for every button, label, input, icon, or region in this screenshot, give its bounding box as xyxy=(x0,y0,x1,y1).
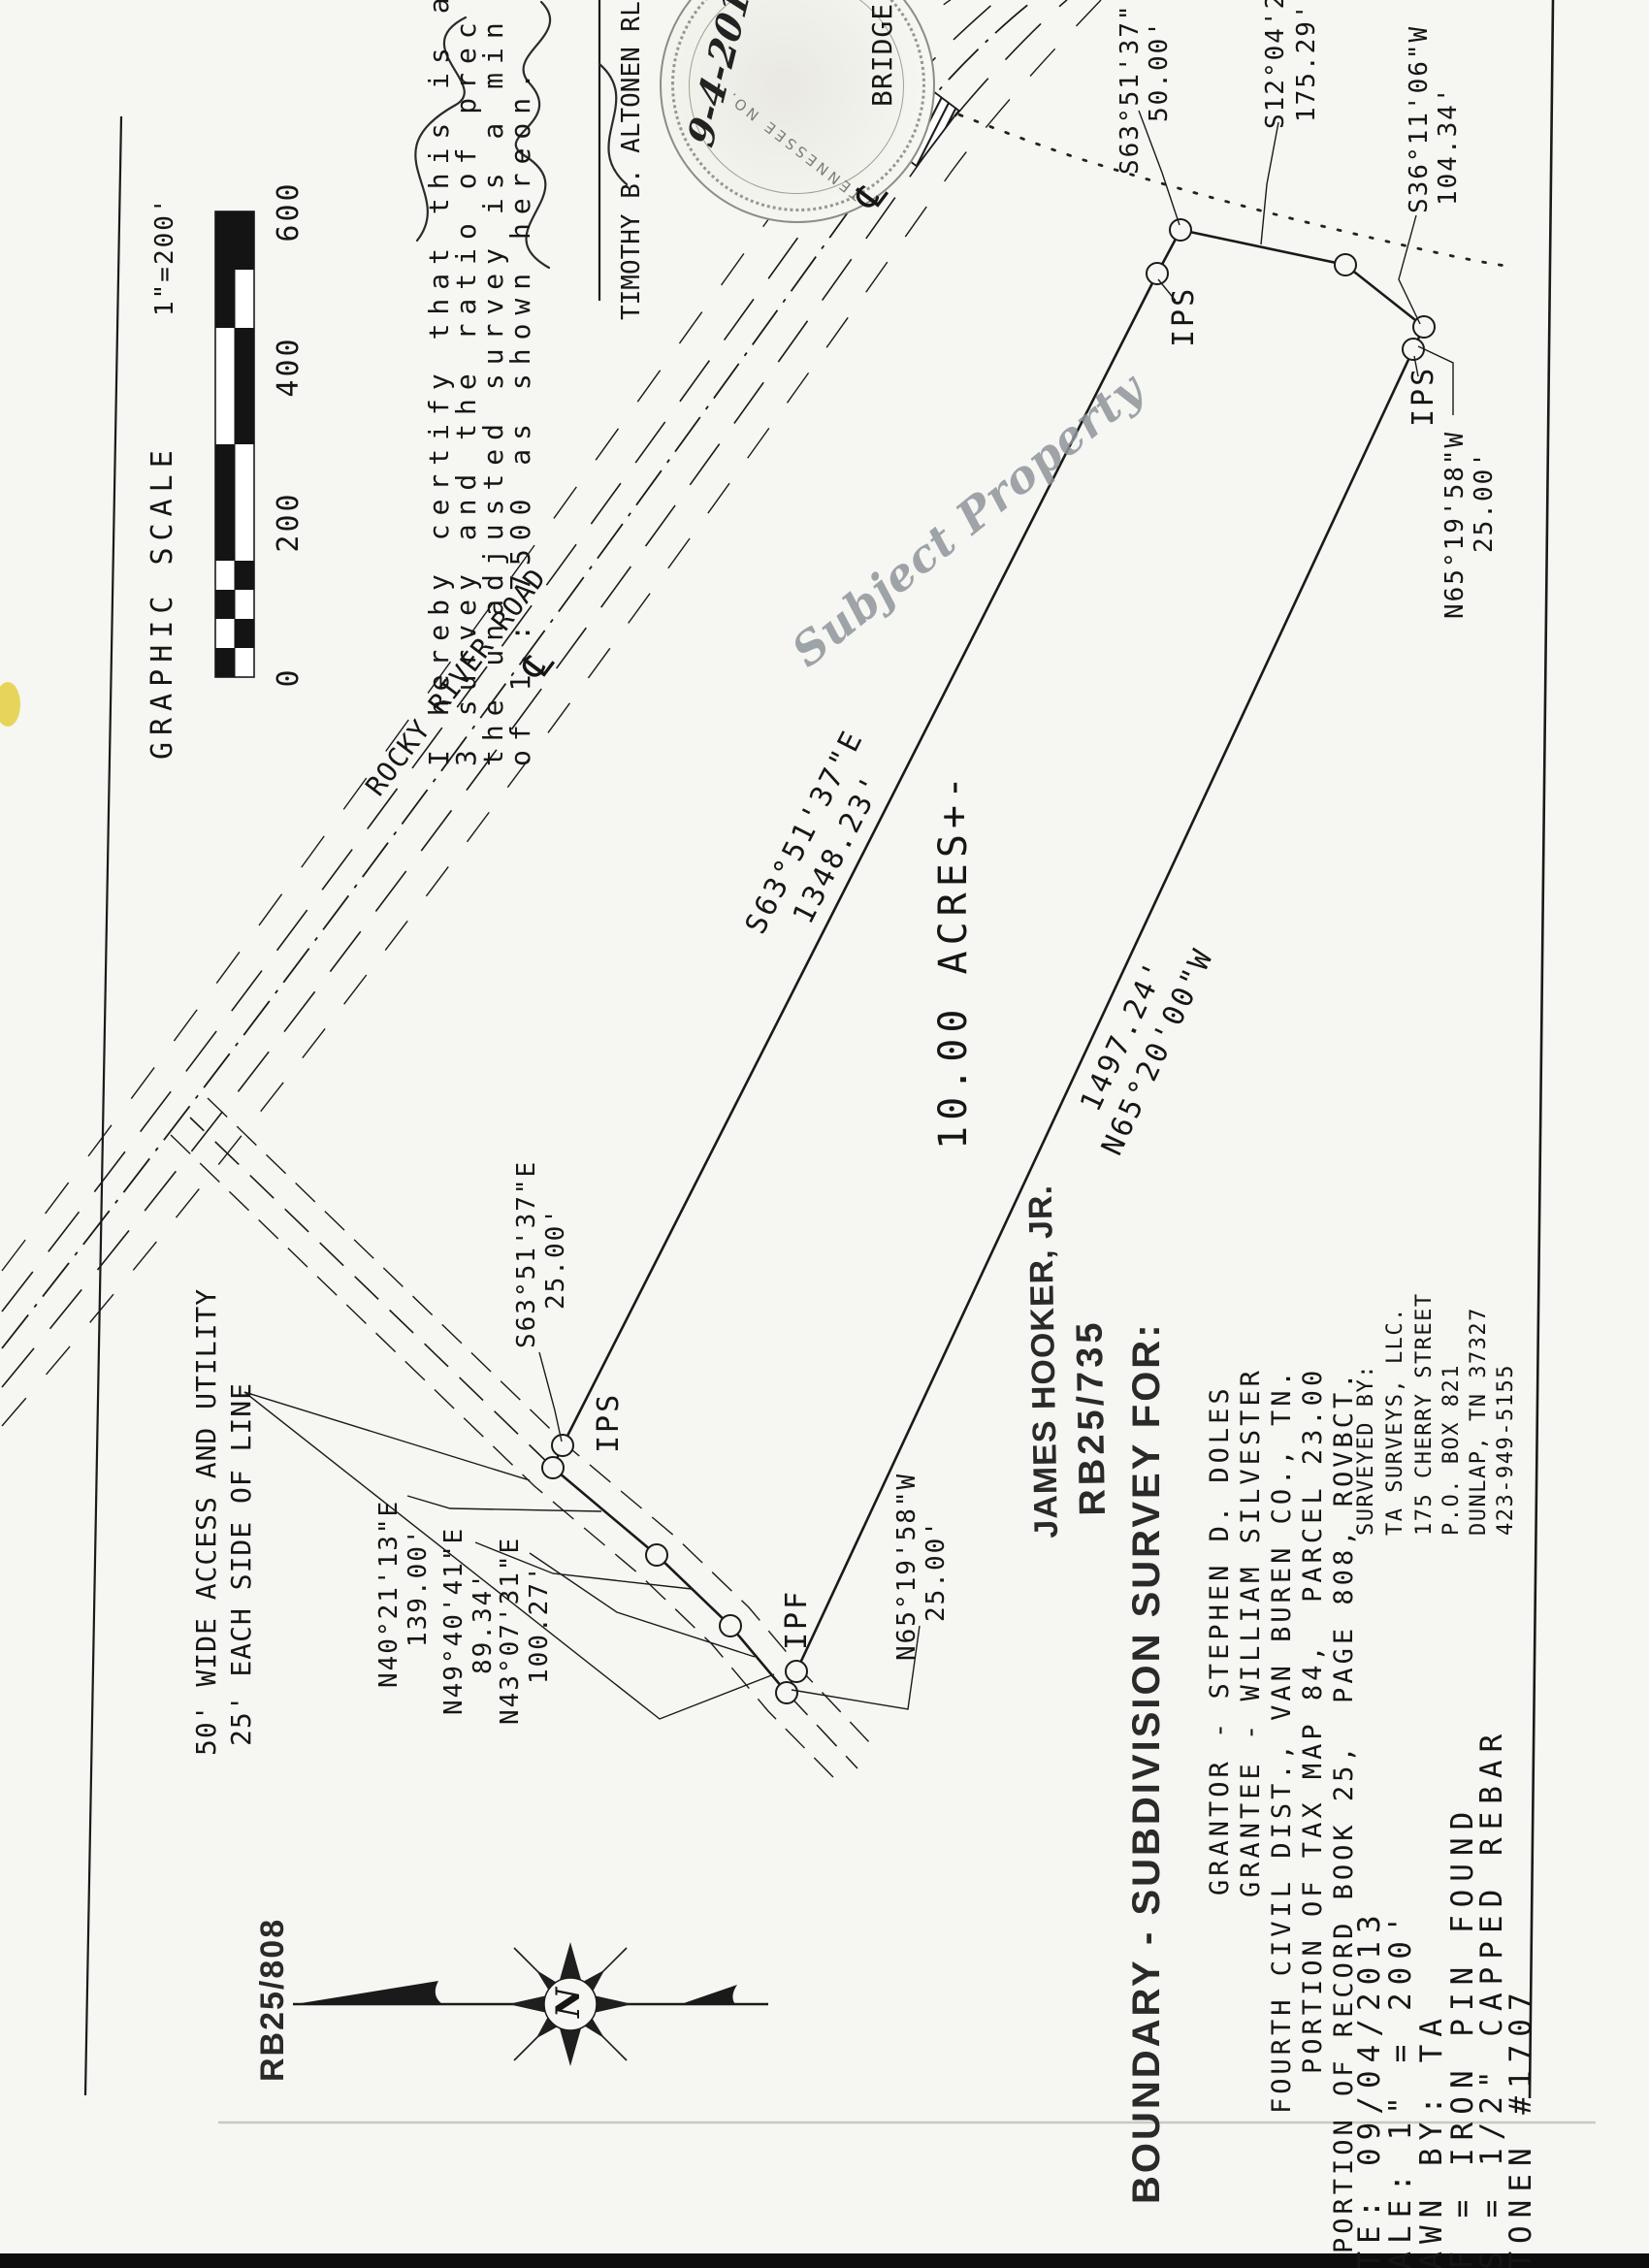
access-seg1-distance: 139.00' xyxy=(404,1527,433,1647)
scale-tick-400: 400 xyxy=(272,328,306,405)
surveyed-by-1: SURVEYED BY: xyxy=(1354,1364,1378,1536)
title-line-5: PORTION OF TAX MAP 84, PARCEL 23.00 xyxy=(1298,1367,1328,2074)
scale-tick-0: 0 xyxy=(272,638,306,716)
ips-label-west: IPS xyxy=(592,1392,626,1453)
bridge-label: BRIDGE xyxy=(866,3,898,107)
sw25-distance: 25.00' xyxy=(921,1519,951,1622)
survey-plat-scan: TENNESSEE NO. GRAPHIC SCALE 1"=200' 0 20… xyxy=(0,0,1649,2268)
scale-bar xyxy=(215,211,254,677)
plat-landscape-canvas: TENNESSEE NO. GRAPHIC SCALE 1"=200' 0 20… xyxy=(0,0,1649,2268)
ipf-label: IPF xyxy=(780,1589,814,1650)
paper-defect-mark xyxy=(0,682,20,727)
note-date: DATE: 09/04/2013 xyxy=(1352,1907,1387,2268)
se25-bearing: N65°19'58"W xyxy=(1440,431,1470,619)
graphic-scale-ratio: 1"=200' xyxy=(150,196,179,316)
graphic-scale-title: GRAPHIC SCALE xyxy=(145,443,179,760)
surveyed-by-3: 175 CHERRY STREET xyxy=(1412,1292,1437,1536)
surveyed-by-4: P.O. BOX 821 xyxy=(1439,1364,1464,1536)
scale-tick-200: 200 xyxy=(272,483,306,561)
ne2-bearing: S12°04'28" xyxy=(1261,0,1290,129)
access-seg1-bearing: N40°21'13"E xyxy=(374,1500,404,1688)
surveyed-by-6: 423-949-5155 xyxy=(1494,1364,1518,1536)
border-bottom xyxy=(1530,0,1553,2098)
title-line-1: BOUNDARY - SUBDIVISION SURVEY FOR: xyxy=(1125,1321,1169,2204)
access-seg3-bearing: N43°07'31"E xyxy=(496,1537,525,1725)
scale-tick-600: 600 xyxy=(272,173,306,250)
w25-bearing: S63°51'37"E xyxy=(512,1160,541,1348)
sw25-bearing: N65°19'58"W xyxy=(892,1473,921,1661)
w25-distance: 25.00' xyxy=(541,1207,570,1310)
rb808-stamp: RB25/808 xyxy=(254,1918,292,2082)
title-line-4: FOURTH CIVIL DIST., VAN BUREN CO., TN. xyxy=(1267,1367,1297,2114)
surveyed-by-5: DUNLAP, TN 37327 xyxy=(1467,1307,1491,1536)
ne1-distance: 50.00' xyxy=(1145,19,1174,122)
ne2-distance: 175.29' xyxy=(1292,2,1321,122)
surveyed-by-2: TA SURVEYS, LLC. xyxy=(1383,1307,1407,1536)
access-label-1: 50' WIDE ACCESS AND UTILITY xyxy=(190,1288,222,1756)
adjoiner-name-stamp: JAMES HOOKER, JR. xyxy=(1022,1184,1066,1539)
title-line-2: GRANTOR - STEPHEN D. DOLES xyxy=(1205,1384,1235,1895)
ips-label-ne: IPS xyxy=(1167,286,1201,347)
title-line-3: GRANTEE - WILLIAM SILVESTER xyxy=(1236,1367,1266,1897)
compass-north-letter: N xyxy=(549,1988,588,2018)
se25-distance: 25.00' xyxy=(1470,450,1499,553)
north-arrow-icon xyxy=(293,1935,768,2072)
ne1-bearing: S63°51'37" xyxy=(1115,3,1145,175)
note-firm: ALTONEN #1707 xyxy=(1503,1985,1538,2268)
adjoiner-book-stamp: RB25/735 xyxy=(1069,1318,1115,1516)
access-seg3-distance: 100.27' xyxy=(525,1564,554,1684)
access-seg2-distance: 89.34' xyxy=(469,1571,498,1674)
note-drawn: DRAWN BY: TA xyxy=(1414,2011,1449,2268)
note-scale: SCALE: 1" = 200' xyxy=(1383,1907,1418,2268)
access-label-2: 25' EACH SIDE OF LINE xyxy=(225,1382,257,1746)
surveyor-name: TIMOTHY B. ALTONEN RLS xyxy=(617,0,646,320)
border-top xyxy=(85,116,121,2095)
access-seg2-bearing: N49°40'41"E xyxy=(439,1527,469,1715)
ne3-distance: 104.34' xyxy=(1434,85,1463,206)
ips-label-se: IPS xyxy=(1406,366,1440,427)
ne3-bearing: S36°11'06"W xyxy=(1405,25,1434,213)
